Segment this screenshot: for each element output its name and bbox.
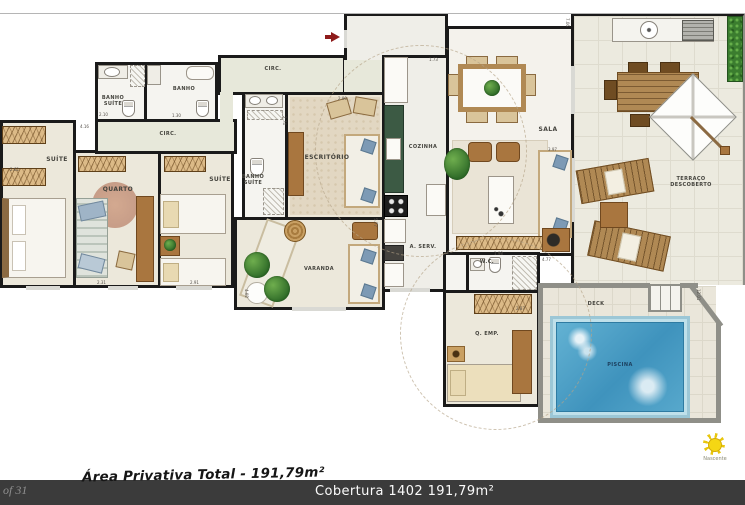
single-bed: [160, 194, 226, 234]
wardrobe: [474, 294, 532, 314]
stove: [384, 195, 408, 217]
double-bed: [2, 198, 66, 278]
entrance-arrow-head: [331, 32, 340, 42]
entry-door: [344, 30, 347, 48]
window: [176, 286, 212, 290]
top-divider-line: [0, 13, 745, 14]
room-label-a-serv: A. SERV.: [407, 244, 439, 250]
outdoor-chair: [604, 80, 617, 100]
pouf: [468, 142, 492, 162]
shower: [130, 65, 145, 87]
round-sink: [640, 21, 658, 39]
lamp-table: [447, 346, 465, 362]
room-label-banho-suite-2: BANHO SUÍTE: [240, 174, 266, 186]
wardrobe: [2, 168, 46, 186]
outdoor-chair: [630, 114, 650, 127]
room-label-varanda: VARANDA: [300, 266, 338, 272]
room-label-circ-2: CIRC.: [261, 66, 285, 72]
room-label-deck: DECK: [582, 301, 610, 307]
laundry-tank: [426, 184, 446, 216]
floor-plan-page: SUÍTE QUARTO SUÍTE BANHO SUÍTE BANHO CIR…: [0, 0, 745, 505]
plant: [244, 252, 270, 278]
room-label-q-emp: Q. EMP.: [472, 331, 502, 337]
page-indicator: of 31: [3, 483, 27, 498]
kitchen-sink: [386, 138, 401, 160]
unit-title: Cobertura 1402 191,79m²: [315, 484, 494, 499]
pool-steps: [648, 284, 682, 312]
shower: [512, 256, 537, 290]
window: [390, 288, 430, 292]
deck-wall-bottom: [538, 418, 721, 423]
hedge-planter: [727, 16, 743, 82]
room-label-sala: SALA: [534, 126, 562, 133]
office-desk: [288, 132, 304, 196]
room-label-quarto: QUARTO: [100, 186, 136, 193]
sink: [104, 67, 120, 77]
plant: [164, 239, 176, 251]
round-side-table: [284, 220, 306, 242]
terrace-door: [571, 66, 575, 114]
washer: [384, 263, 404, 287]
armchair: [348, 244, 380, 304]
sink: [249, 96, 261, 105]
dresser: [512, 330, 532, 394]
room-label-cozinha: COZINHA: [407, 144, 439, 150]
toilet: [196, 100, 209, 117]
room-label-suite-1: SUÍTE: [40, 156, 74, 163]
desk-chair: [115, 250, 135, 270]
shower: [263, 188, 284, 215]
umbrella-base: [720, 146, 730, 155]
desk: [136, 196, 154, 282]
deck-wall-right: [716, 322, 721, 422]
armchair: [353, 96, 378, 117]
window: [108, 286, 138, 290]
sofa: [538, 150, 572, 238]
grill: [682, 20, 714, 41]
bathtub: [186, 66, 214, 80]
side-table: [600, 202, 628, 228]
oven: [384, 219, 406, 243]
bathroom-counter: [147, 65, 161, 85]
daybed: [76, 198, 108, 278]
office-sofa: [344, 134, 380, 208]
window: [26, 286, 60, 290]
room-label-piscina: PISCINA: [602, 362, 638, 368]
room-hall: [344, 57, 385, 95]
room-label-banho-suite-1: BANHO SUÍTE: [100, 95, 126, 107]
pouf: [352, 222, 378, 240]
plant: [264, 276, 290, 302]
room-label-terraco: TERRAÇO DESCOBERTO: [664, 176, 718, 188]
sun-icon: [703, 433, 725, 455]
refrigerator: [384, 57, 408, 103]
deck-wall-left: [538, 283, 543, 423]
sun-legend-label: Nascente: [698, 456, 732, 462]
wardrobe: [164, 156, 206, 172]
room-label-suite-2: SUÍTE: [202, 176, 238, 183]
table-centerpiece-plant: [484, 80, 500, 96]
bath-mat: [247, 110, 283, 120]
dimension-label: 4.77: [542, 257, 551, 262]
sideboard: [456, 236, 544, 250]
microwave: [384, 245, 404, 261]
room-label-wc: W.C.: [477, 259, 497, 265]
pouf: [496, 142, 520, 162]
dimension-label: 4.16: [80, 124, 89, 129]
wardrobe: [2, 126, 46, 144]
single-bed: [160, 258, 226, 286]
room-label-circ-1: CIRC.: [156, 131, 180, 137]
deck-wall-top-left: [538, 283, 650, 288]
window: [292, 307, 346, 311]
coffee-table: [488, 176, 514, 224]
room-circulation-2: [218, 55, 346, 95]
wardrobe: [78, 156, 126, 172]
room-label-escritorio: ESCRITÓRIO: [302, 154, 352, 161]
plant: [444, 148, 470, 180]
corridor-opening: [220, 92, 233, 122]
corner-cabinet: [542, 228, 570, 252]
room-label-banho: BANHO: [170, 86, 198, 92]
single-bed: [447, 364, 521, 402]
room-entry: [344, 13, 448, 60]
sink: [266, 96, 278, 105]
